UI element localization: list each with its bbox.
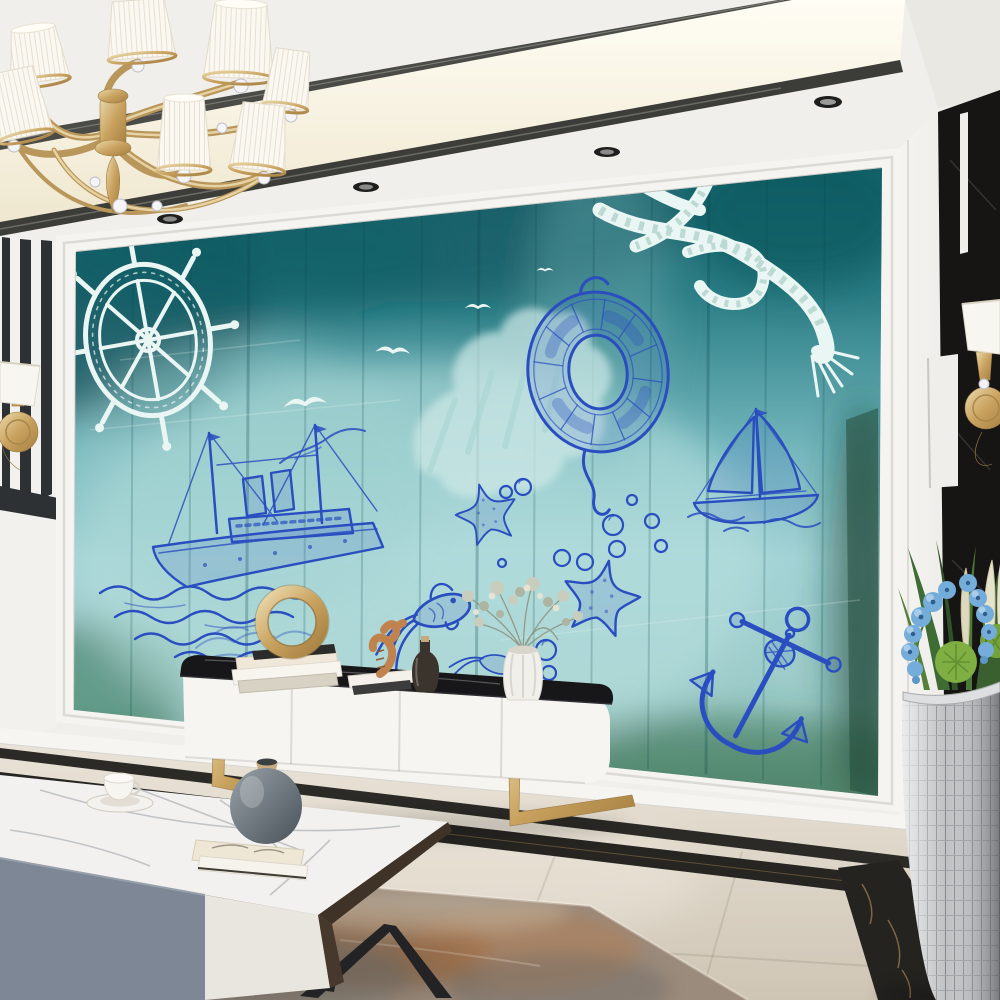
spotlight: [157, 214, 183, 224]
panel-white-stripe: [960, 112, 968, 254]
panel-white-notch: [928, 354, 958, 488]
spotlight: [594, 147, 620, 157]
spotlight: [353, 182, 379, 192]
left-wall: [0, 236, 58, 748]
living-room-scene: [0, 0, 1000, 1000]
spotlight: [814, 96, 842, 108]
stripe: [41, 240, 52, 499]
mural-right-dark-edge: [846, 408, 878, 796]
